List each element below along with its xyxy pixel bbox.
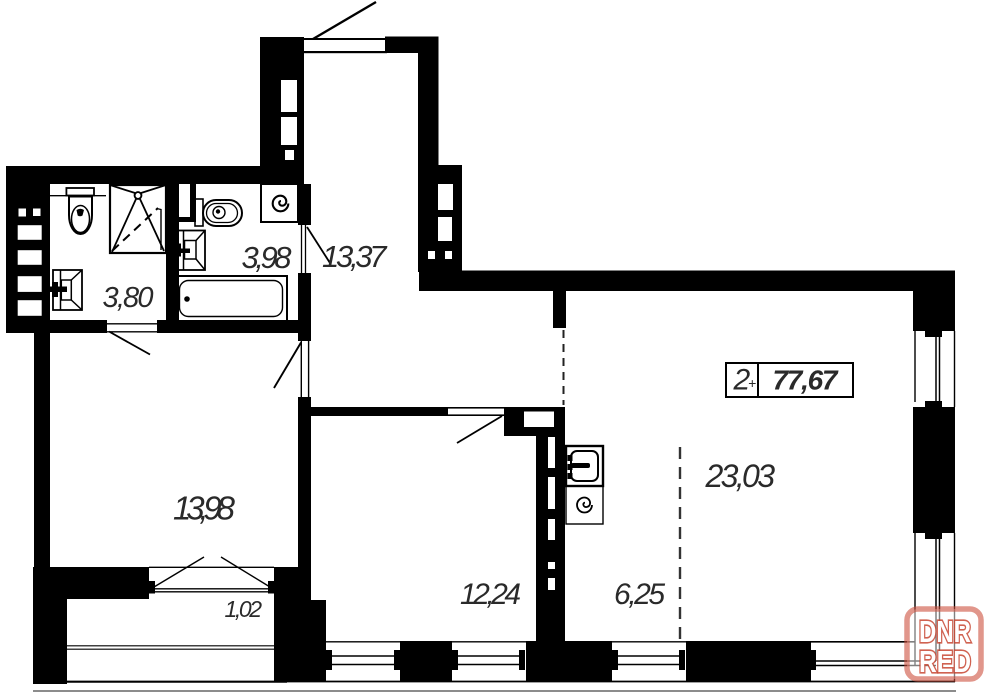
svg-text:+: + [748, 375, 756, 391]
svg-text:3,80: 3,80 [103, 282, 154, 314]
svg-text:23,03: 23,03 [705, 458, 776, 494]
svg-text:12,24: 12,24 [460, 578, 521, 611]
svg-text:RED: RED [919, 644, 971, 679]
svg-text:1,02: 1,02 [225, 596, 263, 622]
svg-text:13,98: 13,98 [173, 490, 236, 527]
svg-text:3,98: 3,98 [242, 240, 293, 275]
svg-text:6,25: 6,25 [614, 578, 665, 611]
svg-text:13,37: 13,37 [322, 239, 388, 274]
svg-text:77,67: 77,67 [773, 365, 839, 396]
